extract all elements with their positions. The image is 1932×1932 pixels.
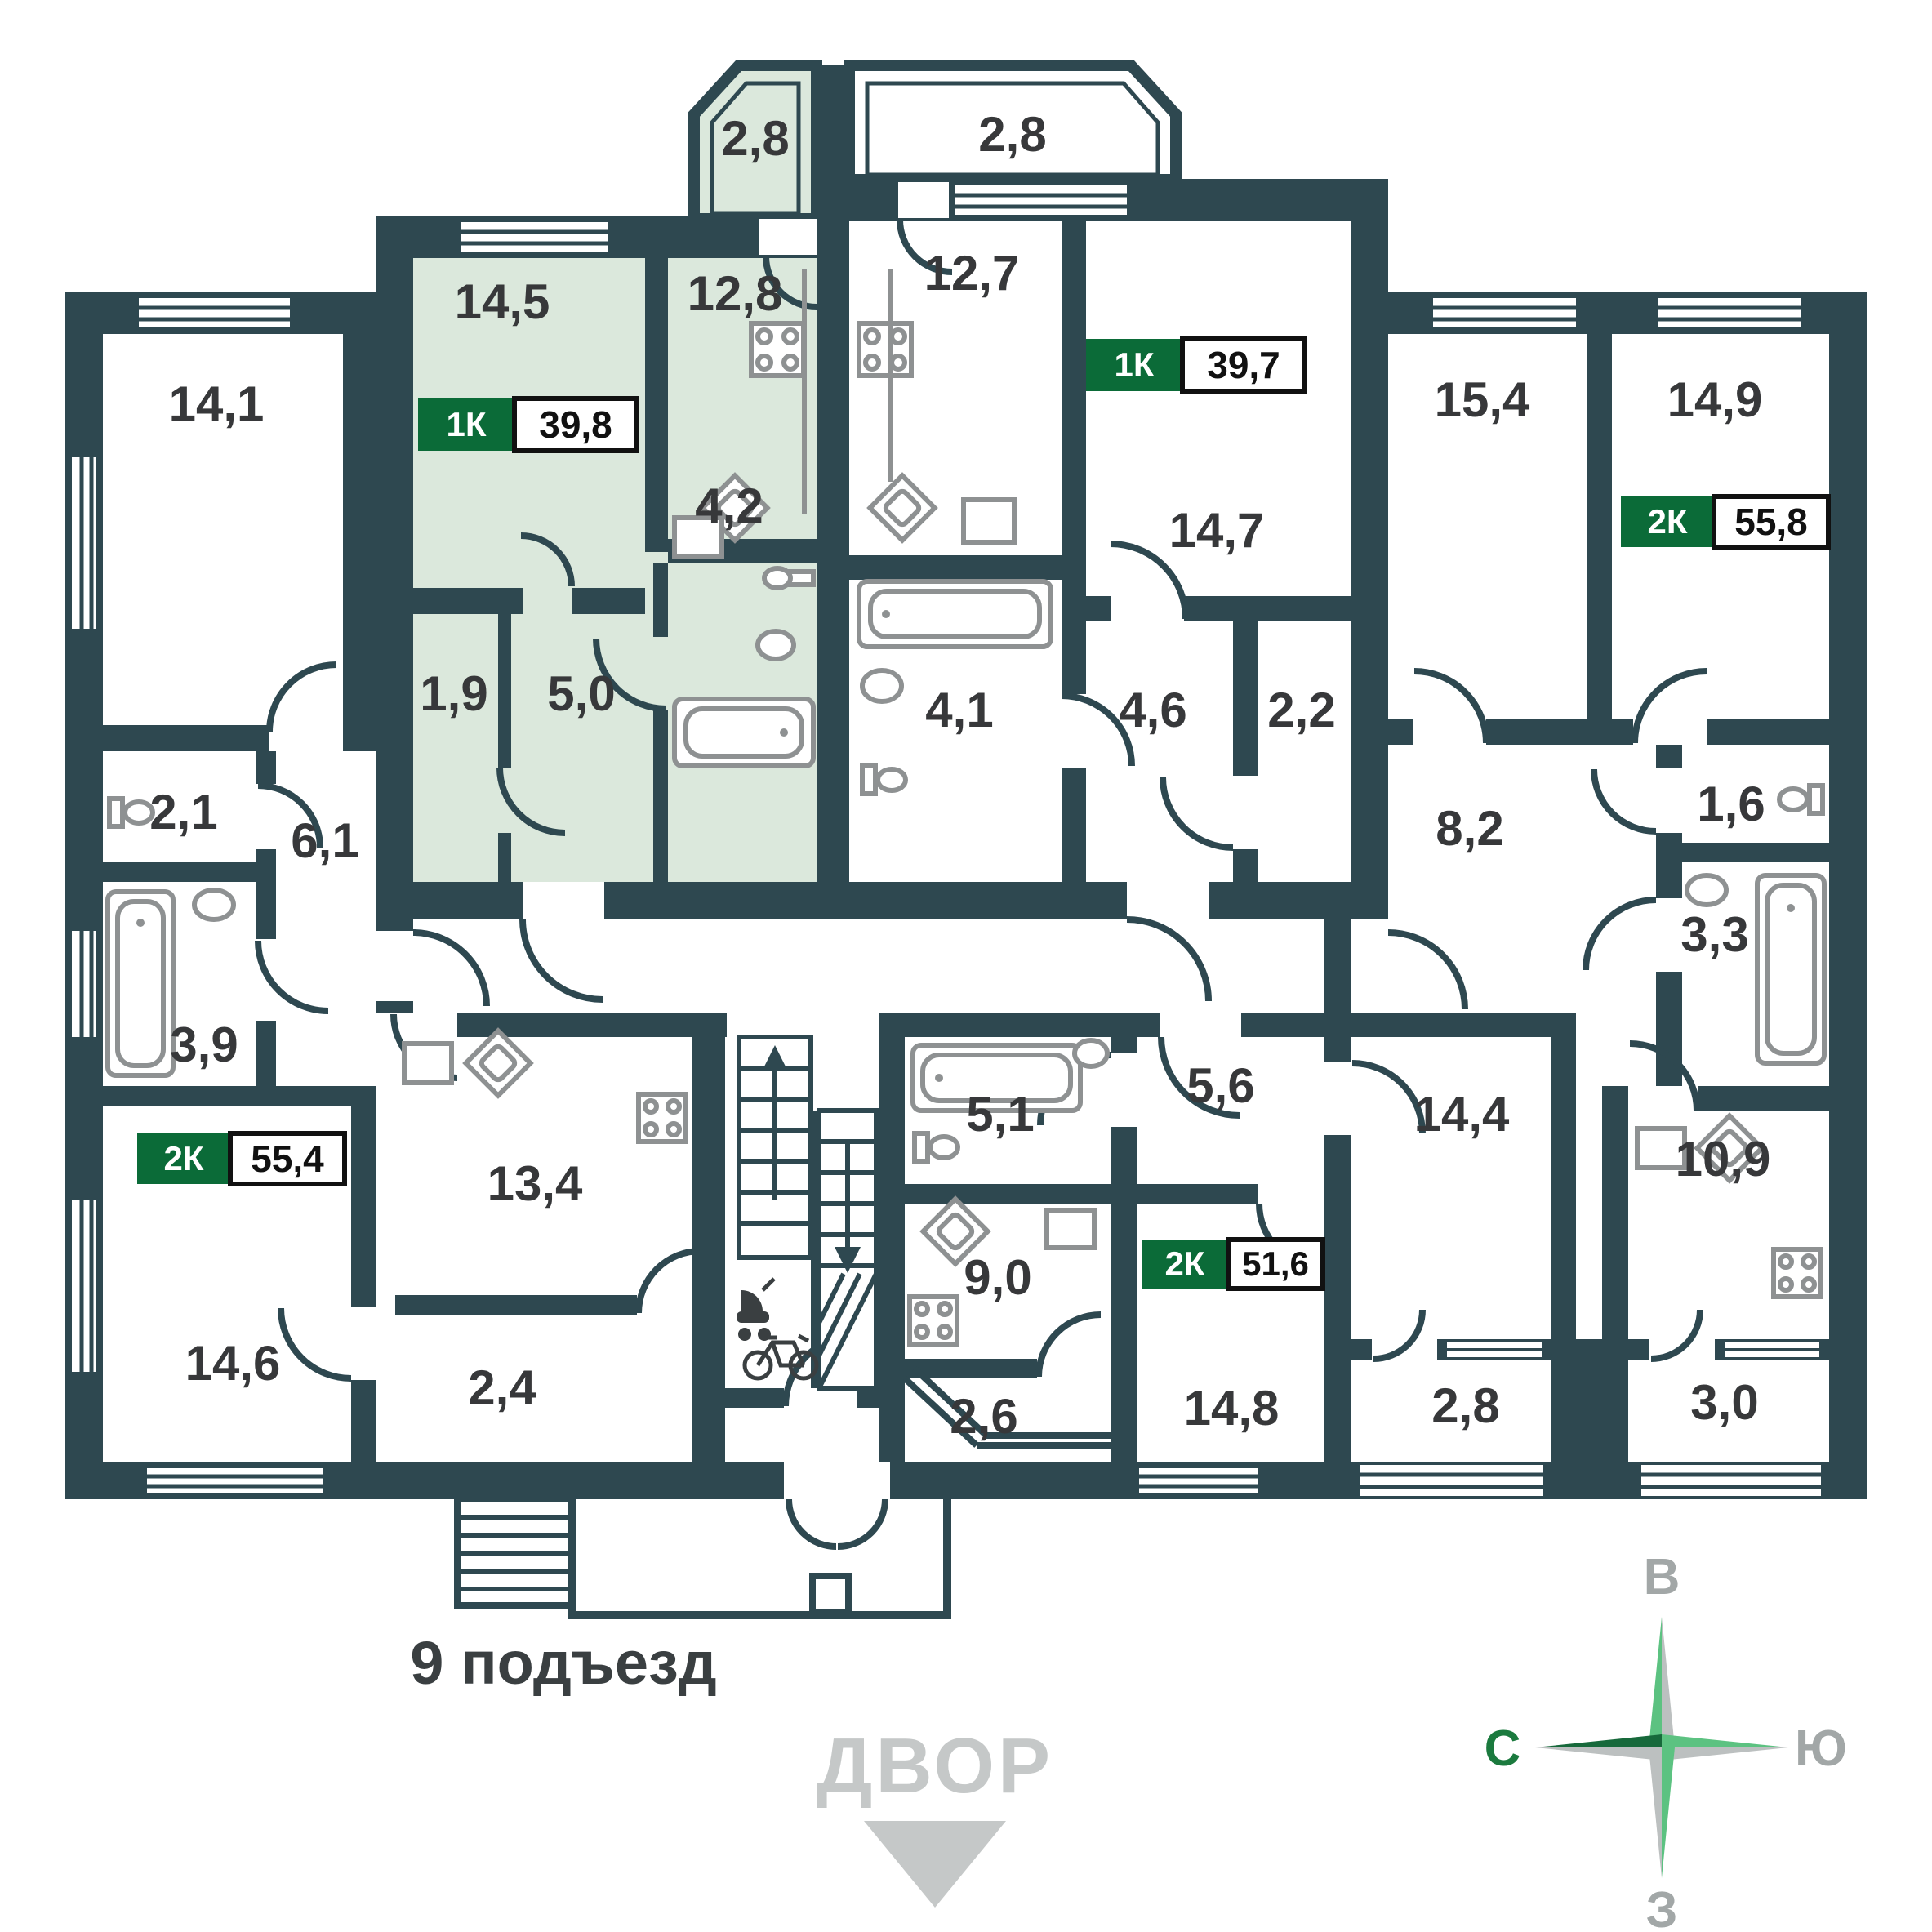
wall-segment [65, 1462, 1867, 1499]
room-label: 4,6 [1119, 683, 1186, 737]
wall-segment [1656, 745, 1682, 768]
wall-segment [1086, 596, 1111, 621]
wall-segment [256, 882, 276, 939]
wall-segment [1241, 1013, 1324, 1037]
counter-icon [404, 1044, 452, 1083]
room-label: 2,1 [149, 785, 217, 839]
compass-east-label: В [1644, 1549, 1680, 1605]
wall-segment [1062, 221, 1086, 555]
room-label: 14,7 [1169, 503, 1265, 558]
wall-segment [1233, 621, 1258, 776]
wall-segment [103, 1086, 376, 1106]
toilet-icon [862, 766, 906, 794]
landing-detail [812, 1576, 848, 1612]
wall-segment [498, 614, 511, 768]
wall-segment [1324, 919, 1351, 1062]
wall-segment [413, 588, 523, 614]
compass-north-label: С [1485, 1721, 1521, 1777]
room-label: 5,6 [1186, 1058, 1254, 1113]
stove-icon [1774, 1249, 1821, 1297]
wall-segment [103, 725, 269, 751]
apartment-badge-center[interactable]: 1К 39,7 [1086, 339, 1305, 391]
toilet-icon [764, 568, 813, 588]
stove-icon [910, 1297, 957, 1344]
room-label: 1,6 [1697, 777, 1765, 831]
apartment-badge-right[interactable]: 2К 55,8 [1621, 496, 1828, 547]
wall-segment [498, 833, 511, 882]
wall-segment [1656, 862, 1682, 898]
room-label: 14,9 [1667, 372, 1763, 427]
room-label: 5,1 [966, 1087, 1034, 1142]
room-label: 14,5 [455, 274, 550, 329]
window [139, 298, 290, 327]
wall-segment [849, 882, 1127, 919]
wall-segment [376, 919, 413, 931]
sink-icon [1687, 875, 1726, 905]
wall-segment [1351, 1013, 1551, 1037]
room-label: 4,2 [695, 479, 763, 533]
room-label: 2,4 [468, 1360, 536, 1415]
wall-segment [103, 862, 276, 882]
wall-segment [725, 1388, 784, 1408]
wall-segment [645, 258, 668, 552]
wall-segment [1682, 843, 1829, 862]
room-label: 2,8 [721, 111, 789, 166]
apartment-badge-left[interactable]: 2К 55,4 [137, 1133, 345, 1184]
wall-segment [376, 1001, 413, 1013]
stove-icon [859, 323, 911, 376]
courtyard-label: ДВОР [817, 1722, 1053, 1810]
balcony-door-gap [759, 219, 817, 255]
loggia-railing [1360, 1465, 1543, 1496]
window [1658, 298, 1801, 327]
wall-segment [817, 65, 849, 221]
bathtub-icon [1757, 875, 1824, 1063]
badge-area-label: 39,7 [1207, 344, 1280, 386]
sink-icon [1075, 1040, 1107, 1066]
room-label: 14,6 [185, 1336, 281, 1391]
floor-plan-page: 14,1 14,5 2,8 2,8 12,8 12,7 14,7 15,4 14… [0, 0, 1932, 1932]
window [72, 457, 96, 629]
room-label: 3,3 [1680, 907, 1748, 962]
counter-icon [964, 500, 1014, 542]
room-label: 9,0 [964, 1250, 1031, 1305]
window [1447, 1342, 1542, 1357]
badge-area-label: 55,8 [1734, 501, 1808, 543]
room-label: 15,4 [1435, 372, 1530, 427]
wall-segment [343, 334, 376, 751]
badge-type-label: 1К [447, 405, 487, 443]
wall-segment [1111, 1184, 1137, 1462]
counter-icon [1047, 1210, 1094, 1248]
wall-segment [879, 1013, 1160, 1037]
wall-segment [1137, 1184, 1258, 1204]
room-label: 3,0 [1690, 1375, 1758, 1430]
room-label: 12,7 [924, 246, 1020, 300]
apartment-badge-green[interactable]: 1К 39,8 [418, 398, 637, 451]
wall-segment [849, 555, 1062, 580]
wall-segment [256, 751, 276, 784]
sink-icon [194, 890, 234, 919]
bathtub-icon [674, 699, 813, 766]
bathtub-icon [859, 581, 1051, 647]
badge-type-label: 2К [1648, 502, 1688, 541]
wall-segment [351, 1106, 376, 1307]
wall-segment [1551, 1339, 1628, 1462]
window [1139, 1468, 1258, 1493]
entrance-doorway [784, 1462, 890, 1499]
room-label: 14,4 [1414, 1087, 1510, 1142]
wall-segment [653, 563, 668, 637]
wall-segment [1209, 882, 1351, 919]
room-label: 2,8 [1431, 1378, 1499, 1433]
wall-segment [1062, 555, 1086, 694]
wall-segment [256, 849, 276, 862]
floor-plan-canvas: 14,1 14,5 2,8 2,8 12,8 12,7 14,7 15,4 14… [0, 0, 1932, 1932]
compass-south-label: Ю [1795, 1721, 1847, 1777]
room-label: 13,4 [487, 1156, 583, 1211]
wall-segment [1486, 719, 1633, 745]
badge-area-label: 55,4 [251, 1137, 324, 1180]
wall-segment [1602, 1086, 1628, 1339]
loggia-railing [1641, 1465, 1821, 1496]
window [955, 185, 1127, 215]
stove-icon [639, 1094, 686, 1142]
room-label: 4,1 [925, 683, 993, 737]
wall-segment [256, 1021, 276, 1086]
window [461, 222, 608, 252]
wall-segment [879, 1037, 905, 1462]
wall-segment [905, 1184, 1111, 1204]
window [72, 1200, 96, 1372]
badge-type-label: 2К [1165, 1244, 1205, 1283]
wall-segment [1698, 1086, 1867, 1111]
room-label: 12,8 [688, 266, 783, 321]
window [1725, 1342, 1819, 1357]
toilet-icon [109, 799, 153, 826]
wall-segment [692, 1013, 725, 1462]
wall-segment [376, 334, 413, 919]
wall-segment [1351, 221, 1388, 919]
wall-segment [1111, 1037, 1137, 1053]
window [147, 1468, 323, 1493]
room-label: 2,8 [978, 107, 1046, 162]
wall-segment [604, 882, 833, 919]
window [1433, 298, 1576, 327]
badge-type-label: 2К [164, 1139, 204, 1177]
wall-segment [1388, 719, 1413, 745]
wall-segment [857, 1388, 879, 1408]
wall-segment [1551, 1013, 1576, 1339]
wall-segment [572, 588, 645, 614]
sink-icon [862, 670, 901, 701]
wall-segment [376, 882, 523, 919]
toilet-icon [915, 1133, 958, 1161]
room-label: 1,9 [420, 666, 487, 721]
room-label: 14,1 [169, 376, 265, 431]
wall-segment [351, 1380, 376, 1462]
apartment-badge-bottom[interactable]: 2К 51,6 [1142, 1240, 1323, 1289]
wall-segment [1184, 596, 1351, 621]
room-label: 8,2 [1436, 801, 1503, 856]
wall-segment [1829, 292, 1867, 1499]
badge-area-label: 51,6 [1242, 1244, 1309, 1283]
wall-segment [1111, 1127, 1137, 1184]
wall-segment [1628, 1339, 1649, 1360]
wall-segment [395, 1295, 637, 1315]
wall-segment [1587, 334, 1612, 719]
room-label: 6,1 [291, 813, 358, 868]
bathtub-icon [108, 892, 173, 1075]
badge-area-label: 39,8 [539, 403, 612, 446]
room-label: 3,9 [170, 1017, 238, 1072]
room-label: 14,8 [1184, 1381, 1280, 1436]
wall-segment [817, 221, 849, 919]
toilet-icon [1779, 786, 1823, 813]
stove-icon [751, 323, 804, 376]
sink-icon [758, 631, 794, 659]
room-label: 10,9 [1676, 1132, 1771, 1186]
window [72, 931, 96, 1037]
compass-west-label: З [1646, 1882, 1678, 1932]
room-label: 2,2 [1267, 683, 1335, 737]
balcony-door-gap [898, 182, 949, 218]
room-label: 5,0 [547, 666, 615, 721]
wall-segment [1656, 833, 1682, 862]
room-label: 2,6 [950, 1389, 1017, 1444]
entrance-label: 9 подъезд [410, 1629, 717, 1697]
wall-segment [1324, 1135, 1351, 1462]
wall-segment [1707, 719, 1867, 745]
wall-segment [1351, 1339, 1372, 1360]
badge-type-label: 1К [1115, 345, 1155, 384]
